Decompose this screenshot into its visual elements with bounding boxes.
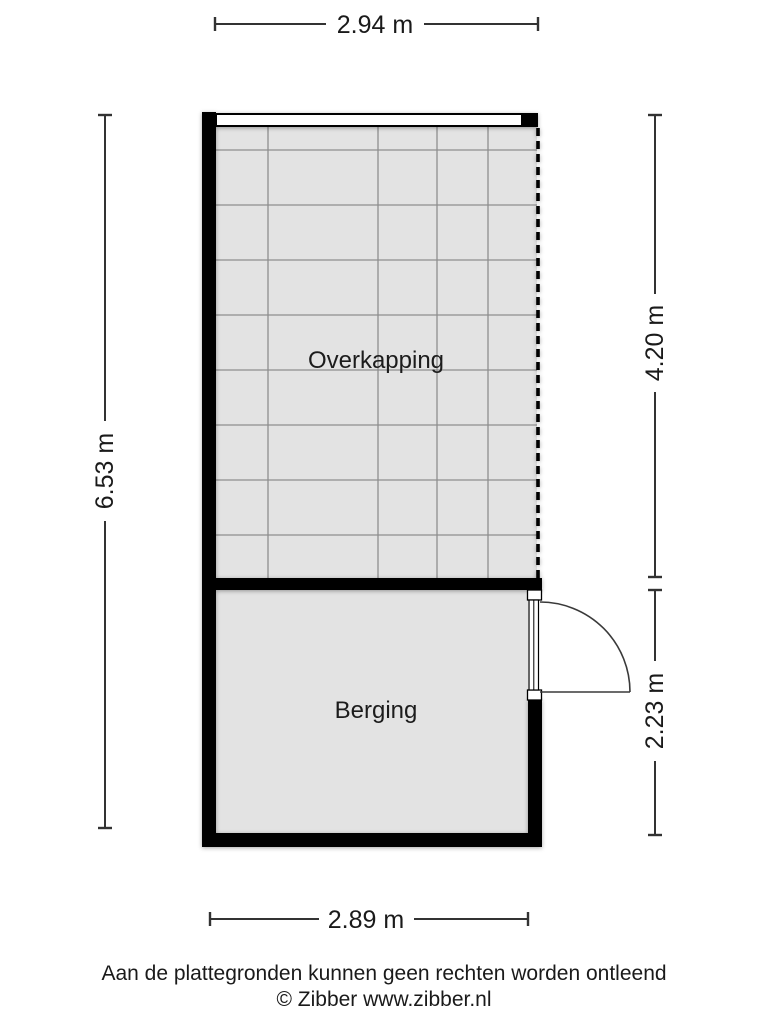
- dimension-label-right-top: 4.20 m: [641, 305, 669, 381]
- bottom-wall: [202, 833, 542, 847]
- floorplan-page: 2.94 m 6.53 m 4.20 m 2.23 m: [0, 0, 768, 1024]
- dimension-right-top: 4.20 m: [641, 115, 669, 577]
- door-jamb-top: [528, 590, 542, 600]
- footer: Aan de plattegronden kunnen geen rechten…: [0, 961, 768, 1012]
- dimension-label-right-bottom: 2.23 m: [641, 673, 669, 749]
- dimension-right-bottom: 2.23 m: [641, 590, 669, 835]
- door-jamb-bottom: [528, 690, 542, 700]
- disclaimer-text: Aan de plattegronden kunnen geen rechten…: [0, 961, 768, 987]
- floorplan-drawing: 2.94 m 6.53 m 4.20 m 2.23 m: [0, 0, 768, 945]
- room-label-berging: Berging: [335, 697, 418, 724]
- door-swing-arc: [540, 602, 630, 692]
- left-wall: [202, 112, 216, 847]
- dimension-top: 2.94 m: [215, 11, 538, 39]
- right-wall: [528, 699, 542, 847]
- divider-wall: [202, 578, 542, 590]
- top-open-beam: [216, 114, 522, 126]
- copyright-text: © Zibber www.zibber.nl: [0, 987, 768, 1012]
- door: [528, 590, 631, 700]
- dimension-label-bottom: 2.89 m: [328, 906, 404, 934]
- dimension-label-left: 6.53 m: [91, 433, 119, 509]
- top-right-post: [522, 113, 538, 127]
- room-label-overkapping: Overkapping: [308, 347, 444, 374]
- dimension-bottom: 2.89 m: [210, 906, 528, 934]
- dimension-left: 6.53 m: [91, 115, 119, 828]
- dimension-label-top: 2.94 m: [337, 11, 413, 39]
